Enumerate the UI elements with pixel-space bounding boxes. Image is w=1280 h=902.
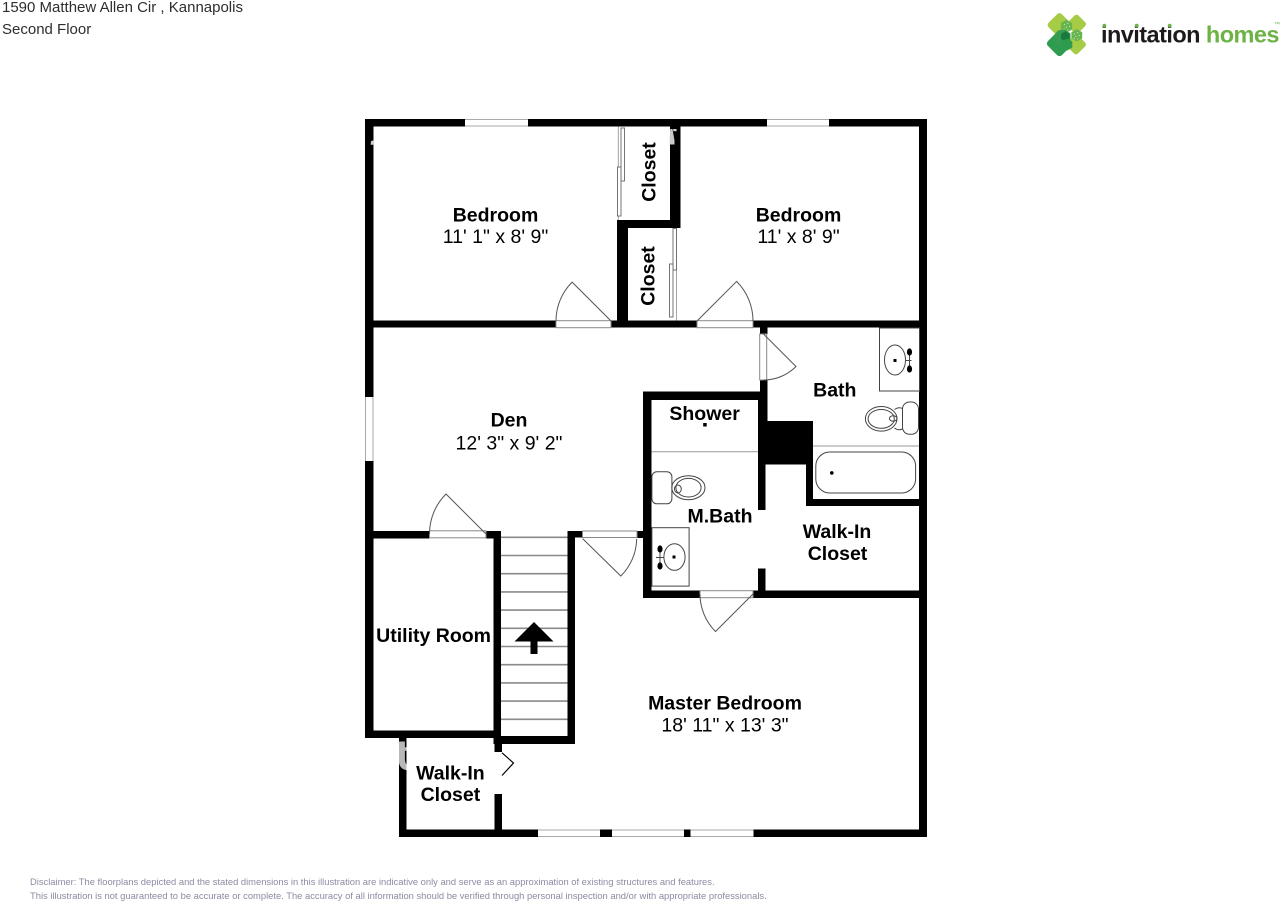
svg-text:Closet: Closet bbox=[639, 142, 661, 202]
svg-text:M.Bath: M.Bath bbox=[688, 506, 753, 528]
svg-text:Walk-In: Walk-In bbox=[416, 763, 485, 785]
svg-text:Den: Den bbox=[491, 410, 528, 432]
svg-text:Closet: Closet bbox=[421, 784, 481, 806]
svg-text:12' 3" x 9' 2": 12' 3" x 9' 2" bbox=[456, 433, 563, 455]
svg-text:Closet: Closet bbox=[808, 543, 868, 565]
svg-text:Shower: Shower bbox=[669, 403, 740, 425]
svg-text:Utility Room: Utility Room bbox=[376, 625, 491, 647]
svg-text:18' 11" x 13' 3": 18' 11" x 13' 3" bbox=[661, 715, 788, 737]
svg-text:Master Bedroom: Master Bedroom bbox=[648, 693, 802, 715]
svg-text:Closet: Closet bbox=[638, 246, 660, 306]
svg-text:11' x 8' 9": 11' x 8' 9" bbox=[757, 226, 839, 248]
svg-text:Bedroom: Bedroom bbox=[453, 205, 539, 227]
svg-text:Bath: Bath bbox=[813, 380, 856, 402]
svg-text:Bedroom: Bedroom bbox=[756, 205, 842, 227]
svg-text:11' 1" x 8' 9": 11' 1" x 8' 9" bbox=[443, 226, 549, 248]
svg-text:Walk-In: Walk-In bbox=[803, 521, 872, 543]
